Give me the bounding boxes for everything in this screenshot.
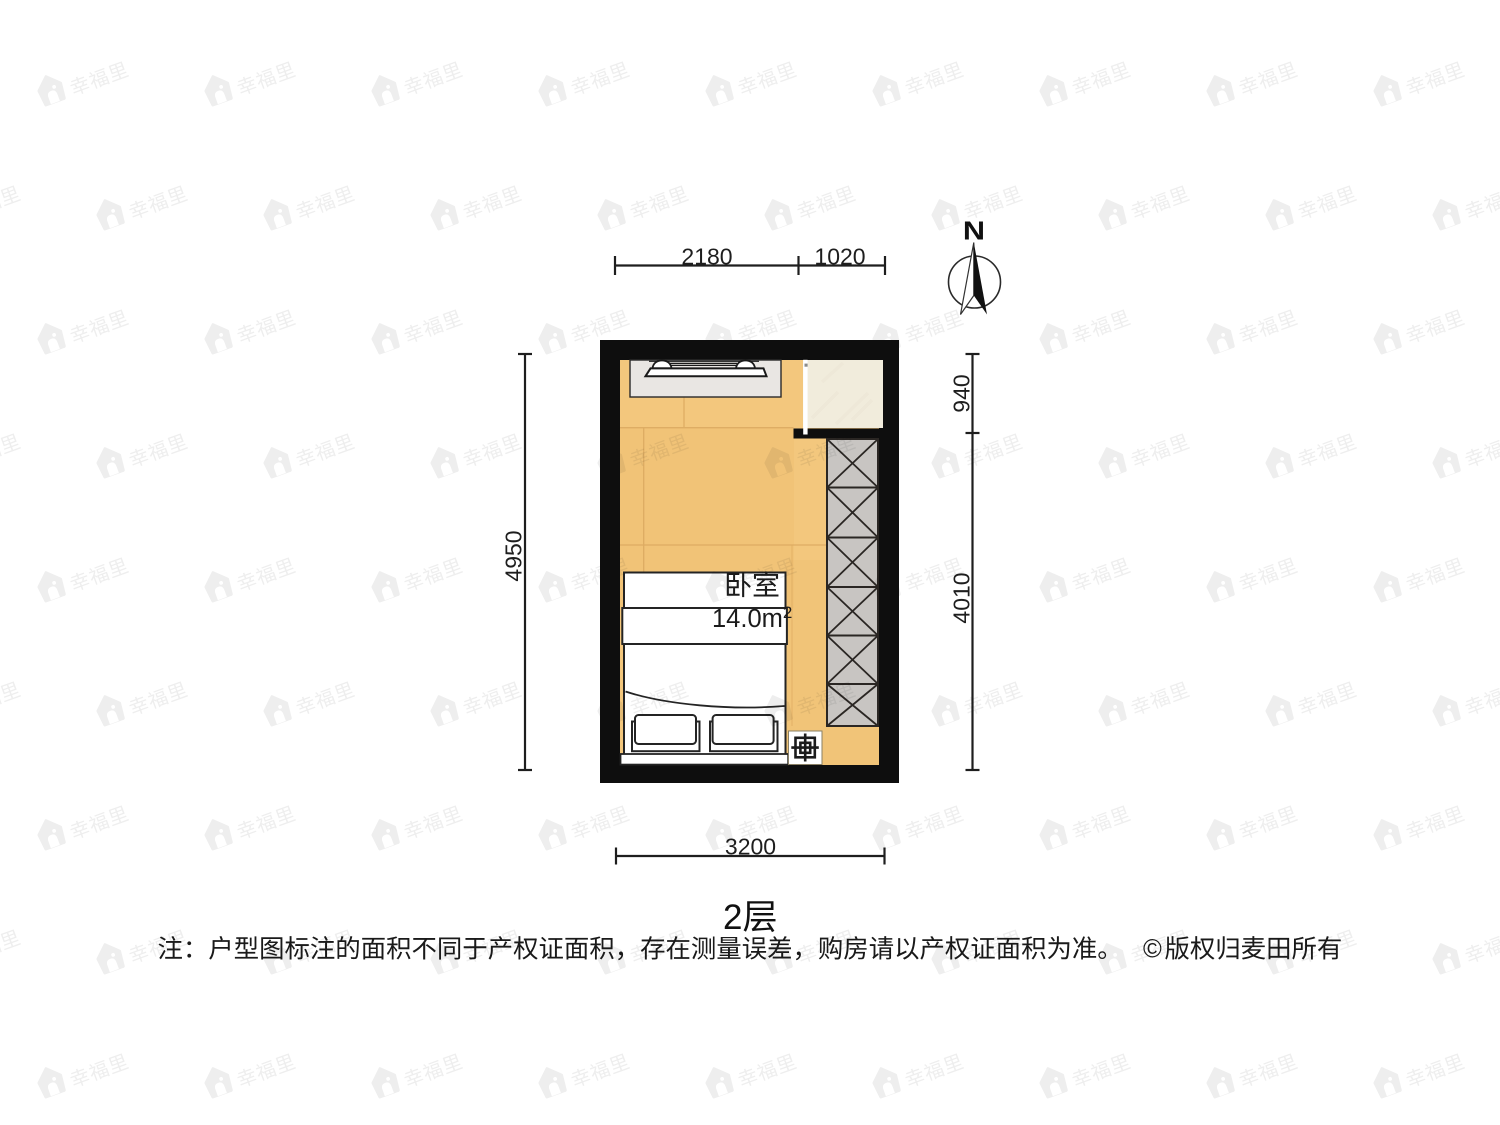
svg-text:2180: 2180: [681, 244, 732, 270]
svg-text:4010: 4010: [949, 572, 975, 623]
svg-text:2: 2: [723, 898, 742, 937]
svg-text:940: 940: [949, 374, 975, 412]
svg-text:N: N: [963, 217, 985, 246]
svg-text:1020: 1020: [814, 244, 865, 270]
svg-text:14.0m2: 14.0m2: [712, 603, 792, 633]
svg-text:4950: 4950: [501, 530, 527, 581]
